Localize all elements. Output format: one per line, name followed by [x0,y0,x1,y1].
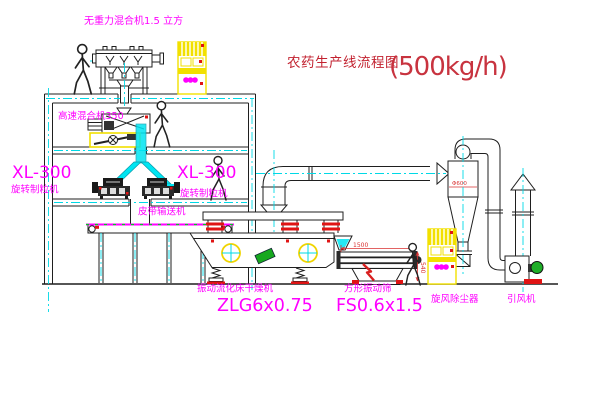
granulator-left [92,178,130,199]
no-gravity-mixer [90,47,164,113]
label-granulator-right-name: 旋转制粒机 [180,188,228,200]
vibrating-screen [337,245,422,285]
person-figure [154,102,170,147]
label-screen-model: FS0.6x1.5 [336,296,423,316]
label-dryer-name: 振动流化床干燥机 [197,283,274,295]
induced-draft-fan [488,255,543,284]
cabinet-motor-symbol-icon [183,77,198,83]
control-cabinet-top [178,42,206,94]
label-cyclone: 旋风除尘器 [431,293,479,305]
control-cabinet-cyclone [428,229,456,284]
dim-screen-length: 1500 [353,242,368,249]
label-belt-conveyor: 皮带输送机 [138,206,186,218]
diagram-title-capacity: (500kg/h) [389,52,507,82]
granulator-right [142,178,180,199]
label-granulator-left-model: XL-300 [12,163,71,183]
label-fan: 引风机 [507,293,536,305]
cad-flow-diagram: 农药生产线流程图 (500kg/h) 无重力混合机1.5 立方 高速混合机350… [0,0,600,403]
fluid-bed-dryer [190,212,352,284]
drawing-canvas: 农药生产线流程图 (500kg/h) 无重力混合机1.5 立方 高速混合机350… [0,0,600,403]
label-granulator-left-name: 旋转制粒机 [11,184,59,196]
dim-cyclone-diameter: Φ600 [452,181,467,187]
spring-mount-icon [207,268,309,284]
exhaust-duct [256,150,449,240]
cabinet-motor-symbol-icon [434,264,449,270]
person-figure [74,45,91,94]
fan-motor-icon [531,262,543,274]
conveyor-legs [99,233,205,283]
label-dryer-model: ZLG6x0.75 [217,296,313,316]
label-screen-name: 方形振动筛 [344,283,392,295]
label-high-speed-mixer: 高速混合机350 [58,110,124,122]
discharge-pipe [136,124,146,163]
dim-screen-height: 540 [419,262,426,274]
label-no-gravity-mixer: 无重力混合机1.5 立方 [84,14,183,27]
diagram-title: 农药生产线流程图 [287,55,399,71]
label-granulator-right-model: XL-300 [177,163,236,183]
